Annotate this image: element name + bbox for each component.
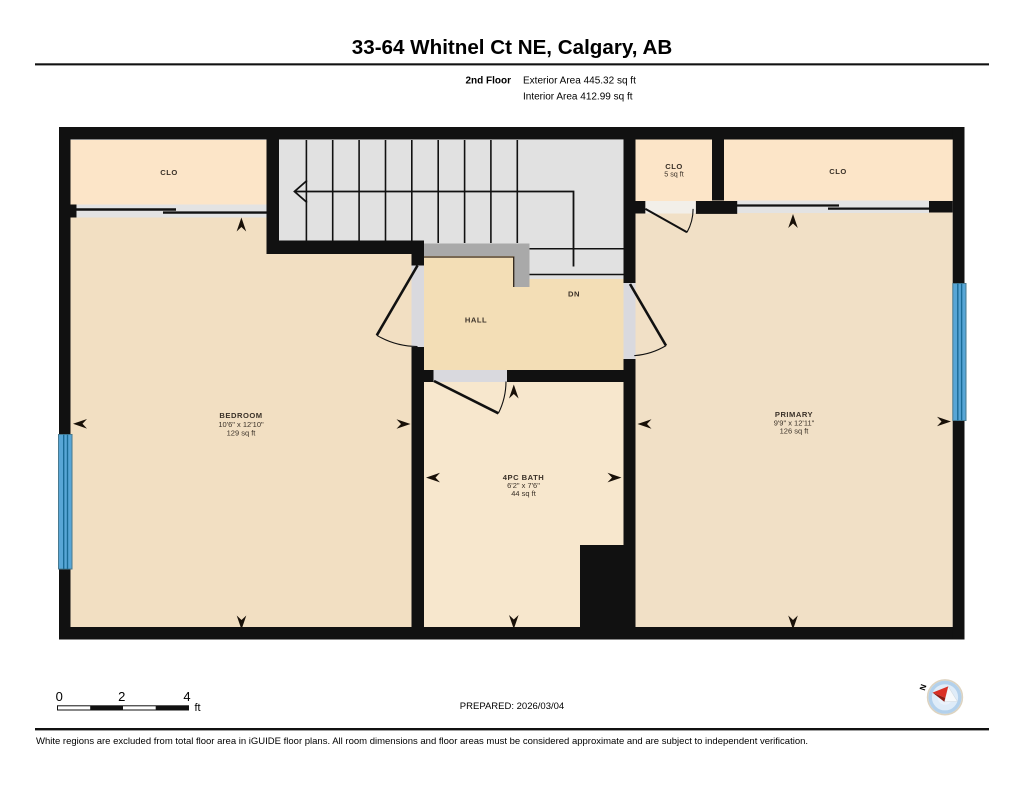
svg-text:2nd Floor: 2nd Floor: [465, 76, 511, 87]
svg-text:129 sq ft: 129 sq ft: [227, 428, 257, 437]
svg-text:BEDROOM: BEDROOM: [219, 411, 262, 420]
svg-text:2: 2: [118, 689, 125, 704]
svg-text:126 sq ft: 126 sq ft: [780, 427, 810, 436]
svg-text:CLO: CLO: [160, 168, 178, 177]
svg-text:DN: DN: [568, 290, 580, 299]
svg-text:White regions are excluded fro: White regions are excluded from total fl…: [36, 736, 808, 747]
svg-text:0: 0: [56, 689, 63, 704]
svg-text:N: N: [918, 683, 928, 691]
svg-text:PREPARED: 2026/03/04: PREPARED: 2026/03/04: [460, 701, 564, 712]
svg-text:33-64 Whitnel Ct NE, Calgary,: 33-64 Whitnel Ct NE, Calgary, AB: [352, 36, 672, 59]
svg-text:44 sq ft: 44 sq ft: [511, 489, 537, 498]
svg-text:Interior Area 412.99 sq ft: Interior Area 412.99 sq ft: [523, 92, 633, 103]
svg-text:CLO: CLO: [829, 167, 847, 176]
svg-text:4: 4: [183, 689, 190, 704]
svg-text:5 sq ft: 5 sq ft: [664, 170, 684, 179]
svg-text:HALL: HALL: [465, 316, 487, 325]
svg-text:Exterior Area 445.32 sq ft: Exterior Area 445.32 sq ft: [523, 76, 636, 87]
svg-text:ft: ft: [195, 702, 201, 714]
